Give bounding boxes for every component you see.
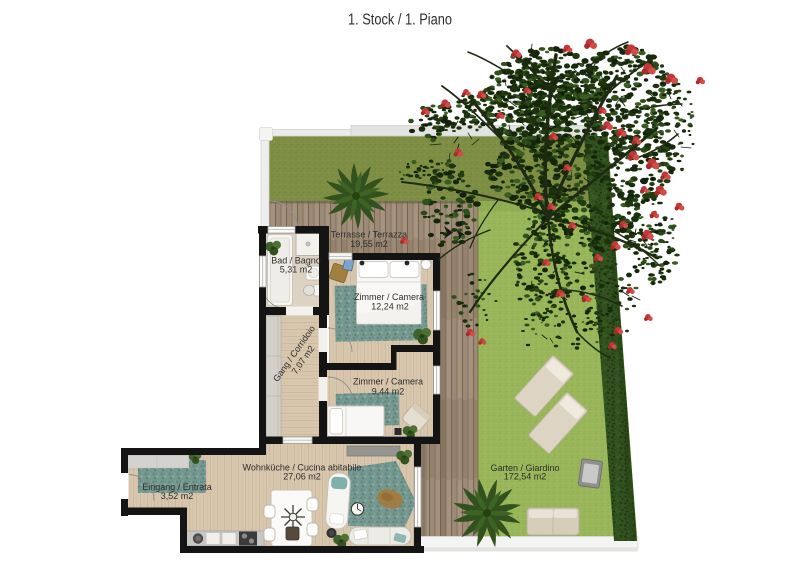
svg-text:5,31 m2: 5,31 m2 <box>280 265 313 275</box>
svg-text:Terrasse / Terrazza: Terrasse / Terrazza <box>331 230 407 240</box>
svg-text:9,44 m2: 9,44 m2 <box>372 387 405 397</box>
svg-text:27,06 m2: 27,06 m2 <box>283 472 321 482</box>
svg-text:Zimmer / Camera: Zimmer / Camera <box>354 292 424 302</box>
svg-text:Zimmer / Camera: Zimmer / Camera <box>353 377 423 387</box>
svg-text:19,55 m2: 19,55 m2 <box>350 239 388 249</box>
svg-text:1. Stock / 1. Piano: 1. Stock / 1. Piano <box>348 12 452 29</box>
svg-text:172,54 m2: 172,54 m2 <box>504 472 547 482</box>
svg-text:3,52 m2: 3,52 m2 <box>161 491 194 501</box>
svg-text:12,24 m2: 12,24 m2 <box>371 302 409 312</box>
